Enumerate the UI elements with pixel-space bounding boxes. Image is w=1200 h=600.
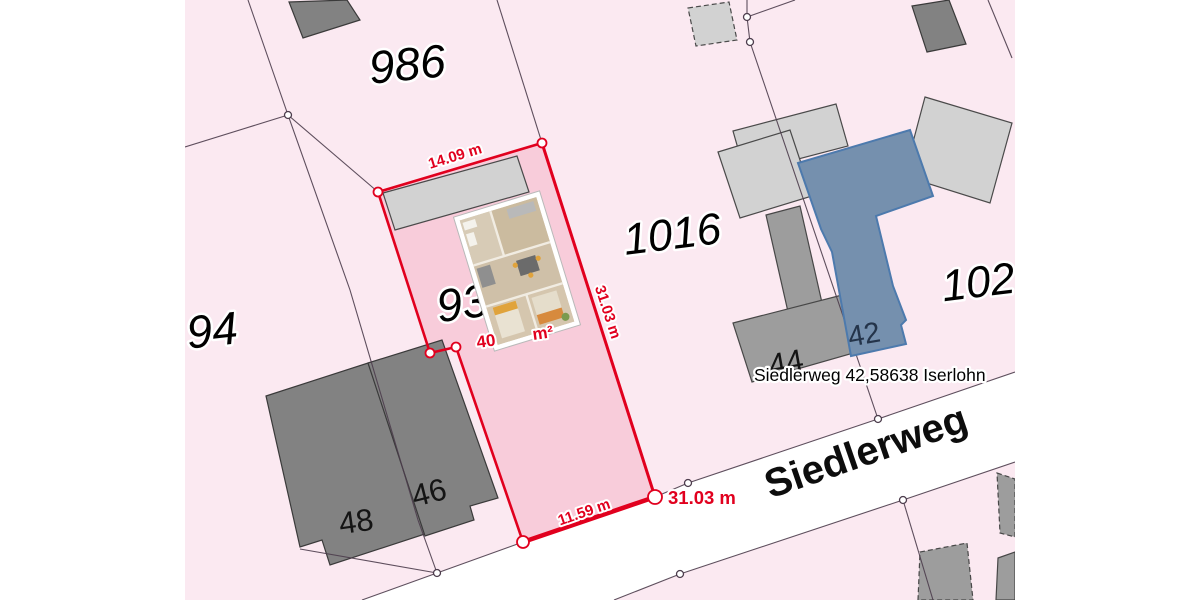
building-bottom-right-1	[918, 543, 973, 600]
map-canvas[interactable]: 93	[0, 0, 1200, 600]
parcel-label-102: 102	[939, 254, 1018, 312]
parcel-label-94: 94	[184, 301, 240, 358]
house-number-48: 48	[337, 502, 376, 541]
garage-dashed-top	[688, 2, 737, 46]
address-label: Siedlerweg 42,58638 Iserlohn	[754, 365, 986, 385]
building-bottom-right-3	[996, 552, 1015, 600]
map-viewer: 93	[0, 0, 1200, 600]
measurement-bottom-total: 31.03 m	[668, 487, 736, 508]
house-number-42: 42	[846, 316, 883, 353]
building-bottom-right-2	[997, 473, 1015, 537]
area-label-prefix: 40	[475, 330, 496, 351]
area-label-suffix: m²	[531, 322, 555, 344]
parcel-label-986: 986	[366, 34, 448, 94]
